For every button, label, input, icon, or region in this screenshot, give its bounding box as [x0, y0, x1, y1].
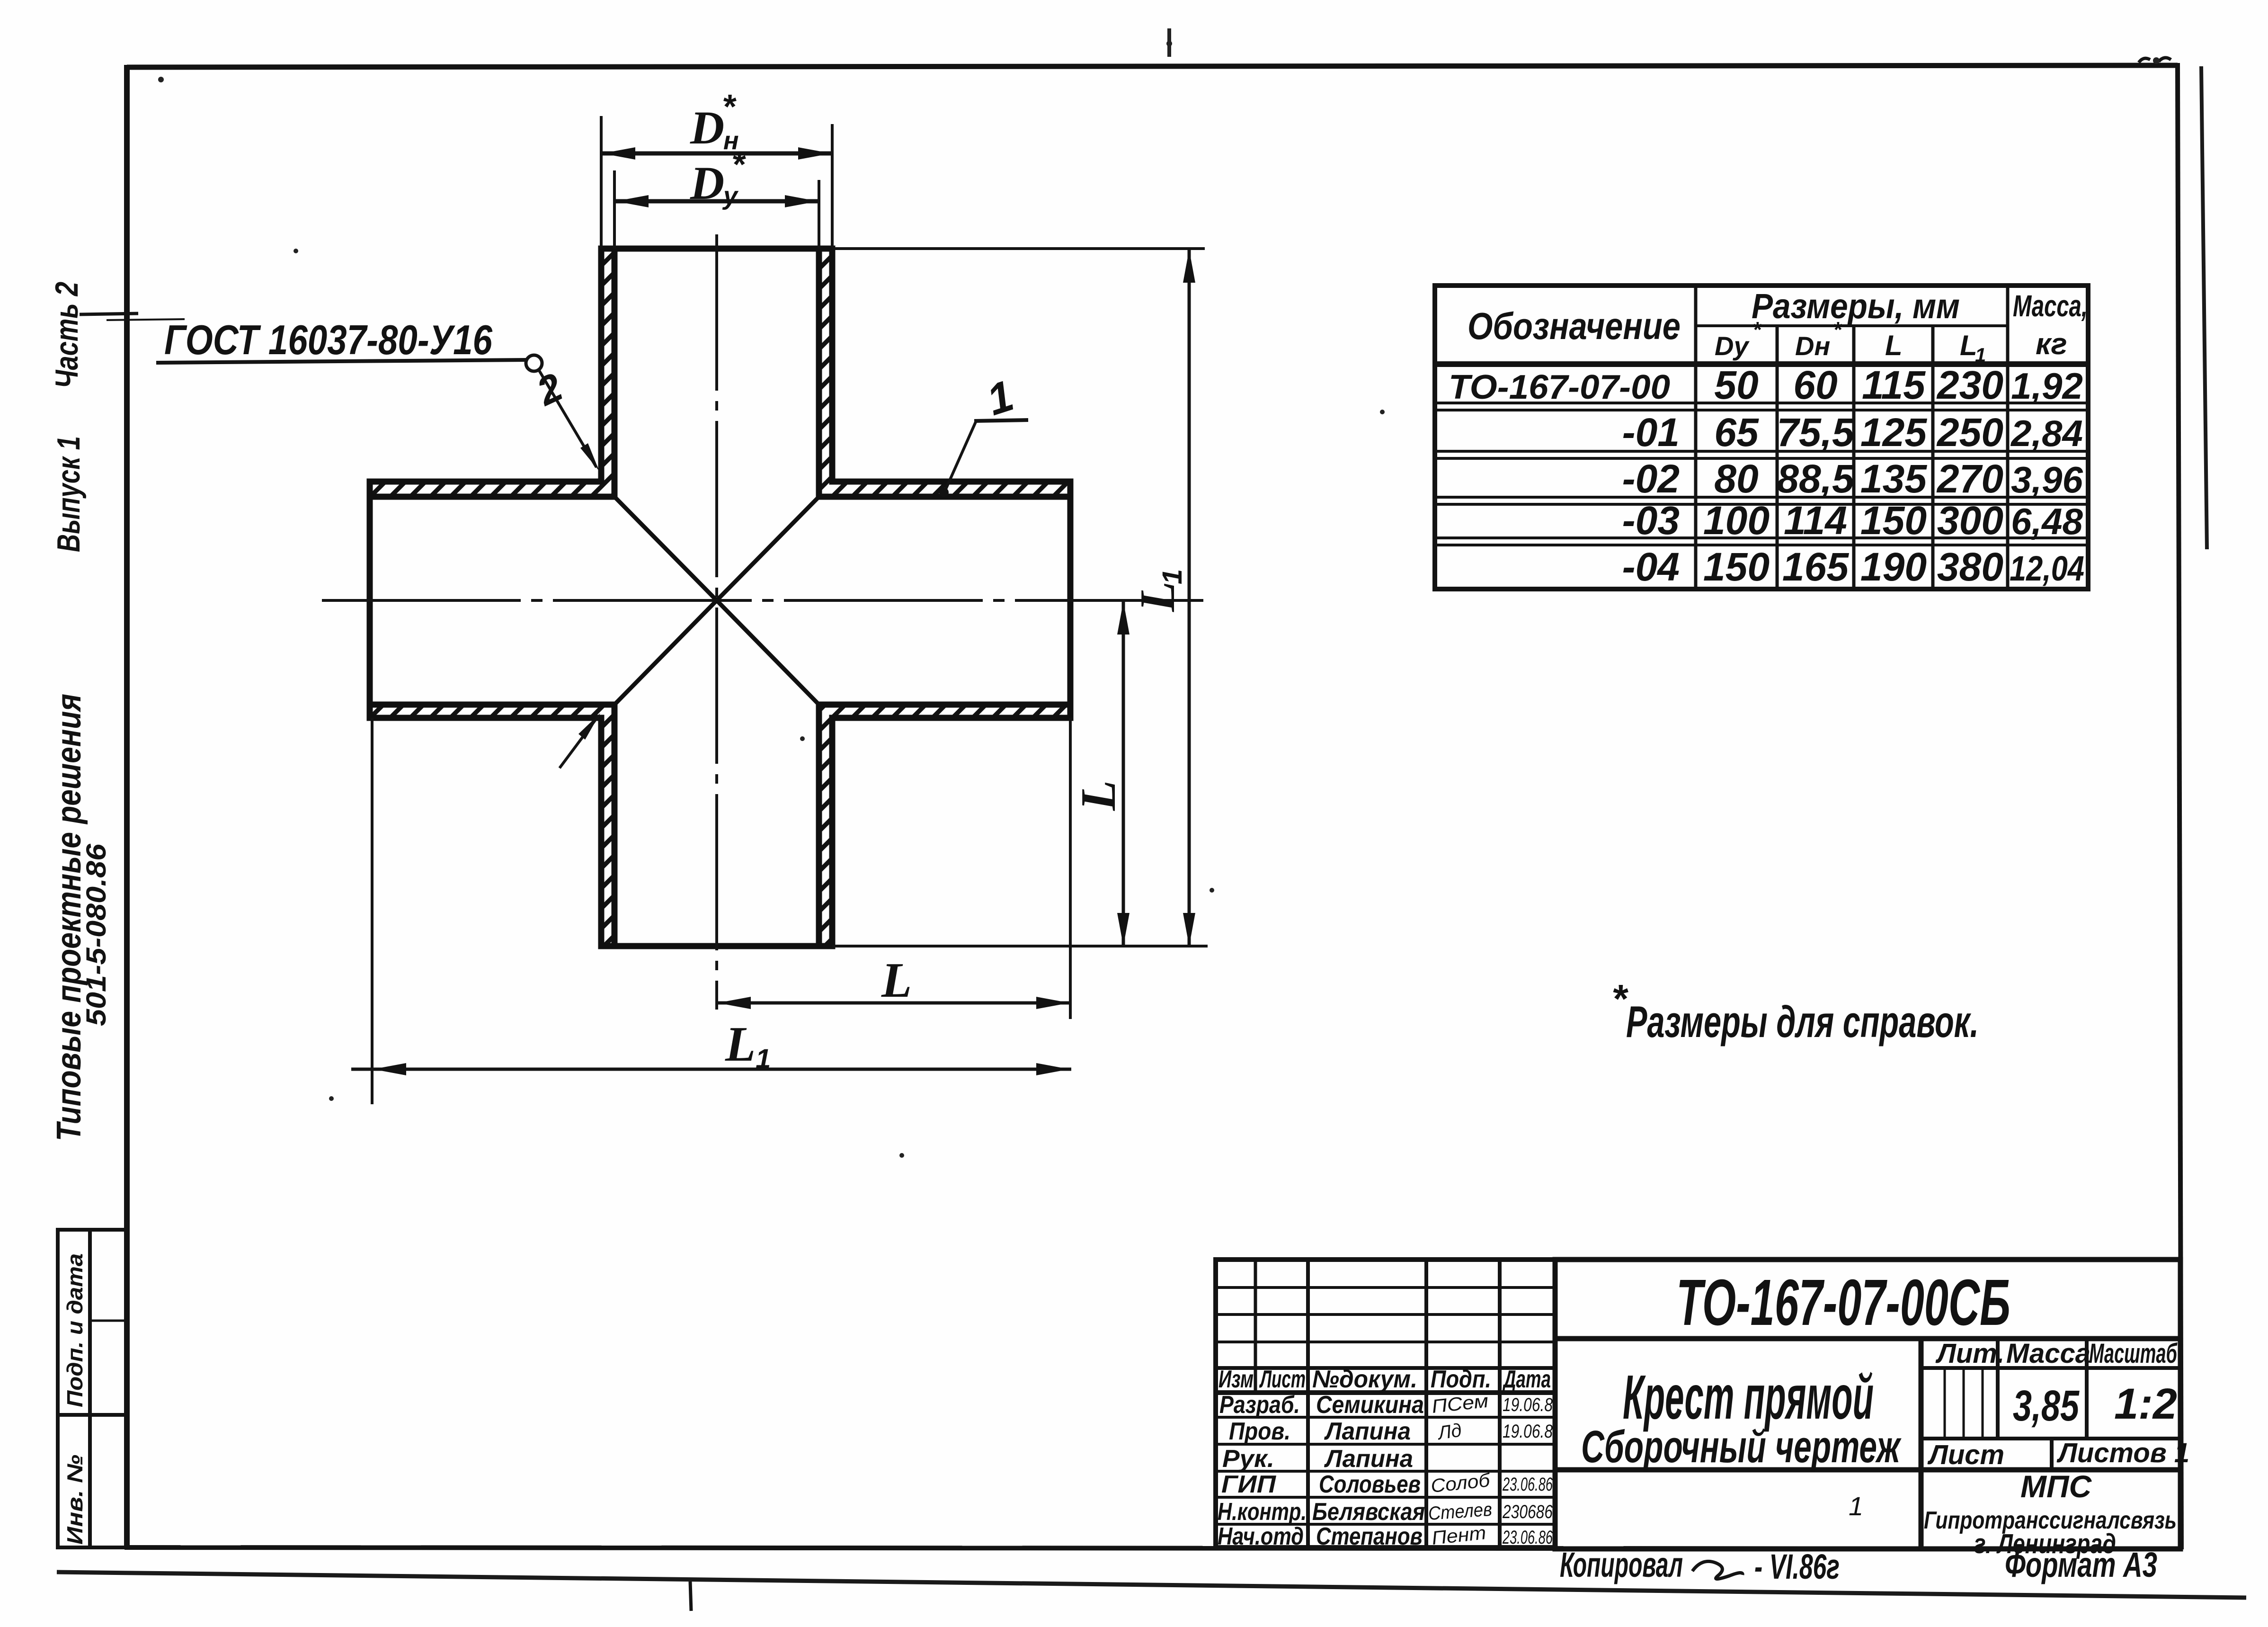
svg-text:L: L	[725, 1016, 756, 1072]
svg-text:Обозначение: Обозначение	[1468, 305, 1681, 347]
svg-text:Семикина: Семикина	[1316, 1391, 1424, 1419]
svg-text:Dн: Dн	[1795, 331, 1830, 361]
svg-text:L: L	[1070, 780, 1126, 811]
svg-text:3,85: 3,85	[2013, 1382, 2080, 1430]
svg-text:65: 65	[1714, 410, 1759, 455]
svg-text:Рук.: Рук.	[1222, 1445, 1274, 1473]
svg-text:ГИП: ГИП	[1221, 1471, 1277, 1498]
svg-text:165: 165	[1782, 545, 1849, 589]
svg-text:Выпуск 1: Выпуск 1	[51, 436, 87, 552]
svg-text:Пров.: Пров.	[1229, 1418, 1290, 1445]
svg-text:Листов 1: Листов 1	[2056, 1438, 2189, 1468]
svg-text:Н.контр.: Н.контр.	[1218, 1498, 1307, 1526]
svg-text:-02: -02	[1622, 456, 1680, 501]
svg-text:Лист: Лист	[1927, 1439, 2004, 1470]
svg-text:ТО-167-07-00: ТО-167-07-00	[1449, 368, 1670, 406]
svg-text:1: 1	[1849, 1491, 1863, 1521]
svg-text:L: L	[1130, 581, 1185, 612]
svg-text:Масса: Масса	[2006, 1338, 2090, 1369]
svg-text:88,5: 88,5	[1777, 456, 1855, 501]
svg-text:125: 125	[1860, 410, 1927, 455]
svg-text:501-5-080.86: 501-5-080.86	[81, 843, 112, 1026]
svg-text:Формат А3: Формат А3	[2005, 1545, 2157, 1584]
svg-text:-01: -01	[1622, 410, 1680, 455]
svg-text:270: 270	[1936, 456, 2003, 501]
svg-text:19.06.8: 19.06.8	[1503, 1421, 1553, 1442]
svg-text:80: 80	[1714, 456, 1758, 501]
svg-text:L: L	[881, 952, 912, 1008]
svg-text:75,5: 75,5	[1777, 410, 1855, 455]
svg-text:Лапина: Лапина	[1324, 1418, 1411, 1445]
svg-text:Разраб.: Разраб.	[1219, 1391, 1300, 1419]
svg-text:230686: 230686	[1502, 1502, 1553, 1522]
svg-text:Изм: Изм	[1218, 1366, 1254, 1393]
svg-text:*: *	[731, 146, 746, 184]
svg-text:Лит.: Лит.	[1935, 1338, 2004, 1369]
svg-text:Дата: Дата	[1502, 1366, 1551, 1393]
svg-text:300: 300	[1937, 498, 2003, 543]
svg-text:50: 50	[1714, 363, 1758, 407]
svg-text:Копировал: Копировал	[1560, 1545, 1683, 1584]
svg-text:115: 115	[1862, 363, 1926, 407]
svg-text:1:2: 1:2	[2114, 1380, 2177, 1428]
svg-text:Лист: Лист	[1259, 1366, 1306, 1393]
svg-text:Белявская: Белявская	[1312, 1498, 1425, 1526]
svg-text:- VI.86г: - VI.86г	[1754, 1547, 1840, 1586]
svg-text:Масса,: Масса,	[2013, 289, 2088, 323]
svg-text:Степанов: Степанов	[1316, 1523, 1423, 1550]
svg-text:1,92: 1,92	[2011, 365, 2083, 407]
svg-text:60: 60	[1793, 363, 1837, 407]
svg-text:-03: -03	[1622, 498, 1680, 543]
svg-text:135: 135	[1860, 456, 1927, 501]
svg-text:3,96: 3,96	[2011, 459, 2083, 501]
svg-text:23.06.86: 23.06.86	[1502, 1527, 1553, 1548]
svg-text:2,84: 2,84	[2010, 412, 2083, 454]
svg-text:12,04: 12,04	[2010, 549, 2084, 588]
svg-text:Нач.отд: Нач.отд	[1218, 1523, 1304, 1550]
svg-text:Подп.: Подп.	[1431, 1366, 1491, 1393]
svg-text:ГОСТ 16037-80-У16: ГОСТ 16037-80-У16	[164, 316, 493, 363]
svg-text:380: 380	[1937, 545, 2003, 589]
svg-text:Соловьев: Соловьев	[1319, 1471, 1421, 1498]
svg-text:114: 114	[1784, 498, 1847, 543]
svg-text:ТО-167-07-00СБ: ТО-167-07-00СБ	[1676, 1266, 2010, 1339]
svg-text:1: 1	[1157, 569, 1188, 584]
svg-text:Лапина: Лапина	[1324, 1445, 1413, 1473]
svg-text:D: D	[690, 101, 724, 154]
svg-text:№докум.: №докум.	[1312, 1366, 1417, 1393]
svg-text:у: у	[722, 182, 739, 210]
svg-text:Размеры, мм: Размеры, мм	[1752, 286, 1960, 326]
svg-text:Подп. и дата: Подп. и дата	[62, 1253, 87, 1407]
svg-text:100: 100	[1703, 498, 1770, 543]
svg-text:*: *	[722, 88, 737, 126]
svg-text:L: L	[1885, 330, 1903, 361]
svg-text:Часть 2: Часть 2	[49, 282, 85, 388]
svg-text:Dу: Dу	[1715, 331, 1750, 361]
svg-text:Размеры для справок.: Размеры для справок.	[1626, 997, 1979, 1046]
svg-text:кг: кг	[2036, 327, 2067, 361]
svg-text:-04: -04	[1622, 545, 1680, 589]
svg-text:150: 150	[1703, 545, 1770, 589]
svg-text:D: D	[690, 157, 724, 209]
svg-text:МПС: МПС	[2020, 1469, 2092, 1504]
svg-text:Сборочный чертеж: Сборочный чертеж	[1581, 1421, 1902, 1472]
svg-text:*: *	[1833, 317, 1842, 342]
svg-text:Лд: Лд	[1435, 1420, 1463, 1444]
svg-text:23.06.86: 23.06.86	[1502, 1474, 1553, 1495]
svg-text:19.06.8: 19.06.8	[1503, 1395, 1553, 1415]
svg-text:6,48: 6,48	[2011, 501, 2083, 542]
svg-text:1: 1	[756, 1044, 771, 1074]
svg-text:Стелев: Стелев	[1428, 1499, 1493, 1524]
svg-text:Масштаб: Масштаб	[2089, 1338, 2178, 1369]
svg-text:190: 190	[1860, 545, 1927, 589]
svg-text:150: 150	[1860, 498, 1927, 543]
svg-text:230: 230	[1936, 363, 2003, 407]
svg-text:*: *	[1752, 317, 1762, 342]
svg-text:Инв. №: Инв. №	[62, 1455, 87, 1545]
svg-text:250: 250	[1936, 410, 2003, 455]
